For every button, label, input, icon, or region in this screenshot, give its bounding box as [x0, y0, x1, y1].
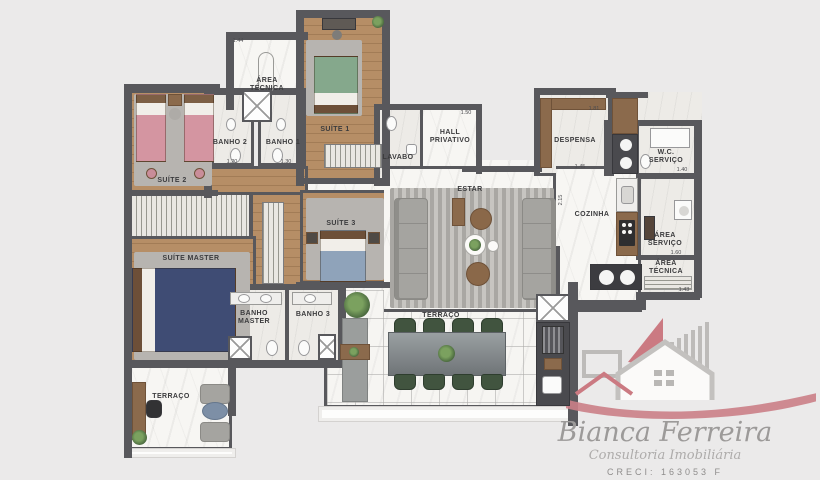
shaft-terrace: [536, 294, 570, 322]
label-area-tecnica-dir: ÁREA TÉCNICA: [644, 260, 688, 276]
banho2-sink: [226, 118, 236, 131]
agency-tagline: Consultoria Imobiliária: [545, 448, 785, 464]
dim-hall-privativo: 1.50: [461, 110, 472, 116]
banho3-shower: [318, 334, 336, 360]
master-bed: [132, 268, 236, 352]
suite3-nightstand-right: [368, 232, 380, 244]
agency-name: Bianca Ferreira: [545, 418, 785, 448]
estar-cabinet: [452, 198, 465, 226]
office-plant: [132, 430, 147, 445]
closet-master: [128, 192, 252, 240]
estar-pouf-bottom: [466, 262, 490, 286]
label-banho-3: BANHO 3: [288, 311, 338, 319]
suite1-bed: [314, 56, 358, 114]
cozinha-oven-unit: [590, 264, 642, 290]
label-cozinha: COZINHA: [564, 211, 620, 219]
laundry-tub: [674, 200, 692, 220]
dim-wc-servico: 1.40: [677, 167, 688, 173]
dim-banho-2: 1.20: [227, 159, 238, 165]
banho3-sink: [304, 294, 316, 303]
dim-despensa-top: 1.81: [589, 106, 600, 112]
grill-board: [544, 358, 562, 370]
label-area-tecnica-top: ÁREA TÉCNICA: [247, 77, 287, 93]
label-banho-2: BANHO 2: [208, 139, 252, 147]
suite1-desk-chair: [332, 30, 342, 40]
estar-table-plant: [469, 239, 481, 251]
label-hall-privativo: HALL PRIVATIVO: [428, 129, 472, 145]
wall-segment: [636, 292, 700, 300]
lounge-table: [202, 402, 228, 420]
dressing-closet: [262, 202, 284, 284]
suite3-bed: [320, 230, 366, 282]
banho3-toilet: [298, 340, 310, 356]
wc-servico-shower: [650, 128, 690, 148]
dim-cozinha: 2.15: [558, 195, 564, 206]
suite1-desk: [322, 18, 356, 30]
lavabo-toilet: [386, 116, 397, 131]
washer-door-icon: [620, 139, 632, 151]
wall-segment: [124, 84, 132, 458]
label-terraco-gourmet: TERRAÇO: [411, 312, 471, 320]
dim-despensa-bottom: 1.45: [575, 164, 586, 170]
banho-master-sink-2: [260, 294, 272, 303]
label-suite-2: SUÍTE 2: [142, 177, 202, 185]
label-suite-3: SUÍTE 3: [311, 220, 371, 228]
suite3-nightstand-left: [306, 232, 318, 244]
label-area-servico: ÁREA SERVIÇO: [643, 232, 687, 248]
label-wc-servico: W.C. SERVIÇO: [646, 149, 686, 165]
estar-sofa-left: [394, 198, 428, 300]
cozinha-cooktop: [619, 220, 635, 246]
wall-segment: [296, 178, 390, 184]
label-banho-master: BANHO MASTER: [232, 310, 276, 326]
banho1-sink: [276, 118, 286, 131]
label-suite-1: SUÍTE 1: [305, 126, 365, 134]
floor-plan-canvas: ÁREA TÉCNICA SUÍTE 1 BANHO 2 BANHO 1 SUÍ…: [0, 0, 820, 480]
dim-area-tecnica-dir: 1.43: [679, 287, 690, 293]
terrace-office-edge-band: [124, 448, 236, 458]
burner-icon: [622, 223, 626, 227]
suite2-bed-left: [136, 94, 166, 162]
oven-door-icon: [599, 270, 614, 285]
despensa-shelf-left: [540, 98, 552, 168]
burner-icon: [628, 230, 632, 234]
dining-chair: [423, 374, 445, 390]
banho-master-sink-1: [238, 294, 250, 303]
wall-segment: [476, 104, 482, 174]
logo-big-house: [618, 342, 712, 400]
cozinha-sink: [621, 186, 634, 204]
suite2-nightstand: [168, 94, 182, 106]
dining-chair: [394, 374, 416, 390]
wall-segment: [604, 120, 610, 176]
wall-segment: [222, 360, 346, 368]
suite1-plant: [372, 16, 384, 28]
label-suite-master: SUÍTE MASTER: [146, 255, 236, 263]
grill-sink: [542, 376, 562, 394]
label-estar: ESTAR: [445, 186, 495, 194]
burner-icon: [628, 223, 632, 227]
cozinha-tall-cabinet: [612, 98, 638, 134]
banho-master-shower: [228, 336, 252, 360]
estar-side-table: [487, 240, 499, 252]
agency-creci: CRECI: 163053 F: [545, 467, 785, 477]
wall-segment: [630, 120, 700, 126]
dim-banho-1: 1.30: [281, 159, 292, 165]
burner-icon: [622, 230, 626, 234]
lounge-chair-top: [200, 384, 230, 404]
logo-building-outline: [584, 352, 620, 376]
washer-dryer-tower: [612, 134, 638, 174]
estar-sofa-right: [522, 198, 556, 300]
wall-segment: [636, 174, 698, 178]
dim-area-servico: 1.60: [671, 250, 682, 256]
agency-logo-text: Bianca Ferreira Consultoria Imobiliária …: [545, 418, 785, 477]
wall-segment: [296, 16, 304, 186]
wall-segment: [296, 282, 392, 288]
terrace-bench: [342, 318, 368, 402]
label-lavabo: LAVABO: [373, 154, 423, 162]
dryer-door-icon: [620, 157, 632, 169]
wall-segment: [124, 190, 218, 196]
lounge-chair-bottom: [200, 422, 230, 442]
label-banho-1: BANHO 1: [261, 139, 305, 147]
terrace-plant: [344, 292, 370, 318]
suite2-bed-right: [184, 94, 214, 162]
estar-pouf-top: [470, 208, 492, 230]
oven-door-icon: [620, 270, 635, 285]
suite2-stool: [169, 108, 181, 120]
office-chair: [146, 400, 162, 418]
terrace-edge-band: [318, 406, 574, 422]
agency-logo-houses: [566, 312, 816, 422]
terrace-planter-plant: [349, 347, 359, 357]
wall-segment: [462, 166, 542, 172]
dining-chair: [452, 374, 474, 390]
wall-segment: [534, 88, 616, 94]
tub-basin-icon: [679, 206, 689, 216]
wall-segment: [694, 120, 702, 298]
label-despensa: DESPENSA: [545, 137, 605, 145]
grill-grate-icon: [542, 326, 564, 354]
banho-master-toilet: [266, 340, 278, 356]
label-terraco-escritorio: TERRAÇO: [141, 393, 201, 401]
dining-chair: [481, 374, 503, 390]
shaft-elevator: [242, 90, 272, 122]
dining-table-plant: [438, 345, 455, 362]
dim-area-tecnica-top: 1.44: [233, 38, 244, 44]
